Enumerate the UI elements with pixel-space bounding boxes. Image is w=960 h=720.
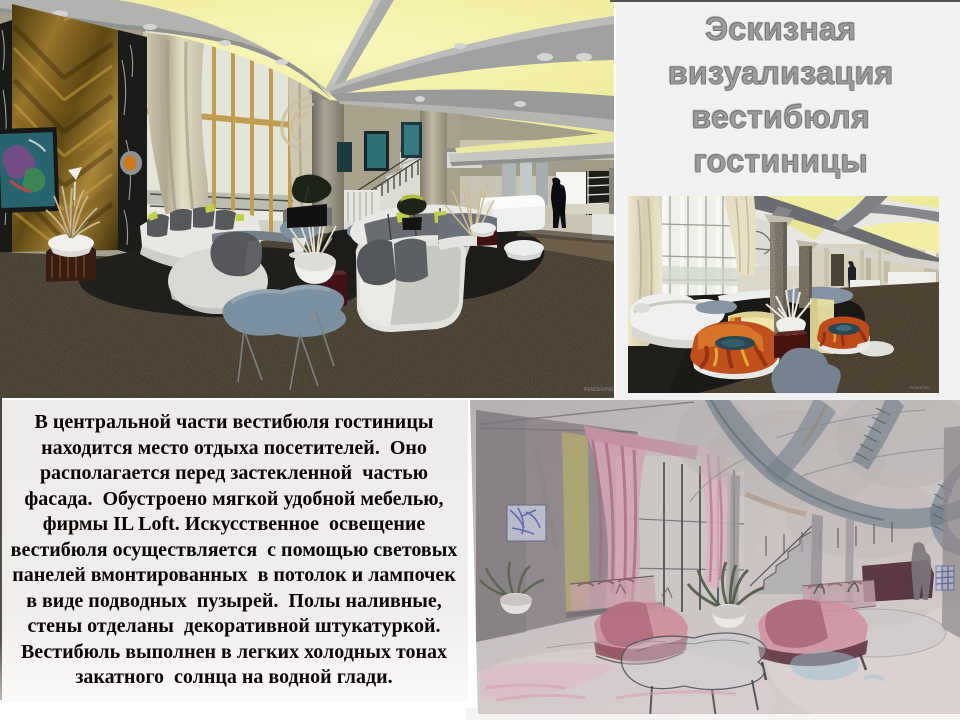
svg-text:PENDERING: PENDERING <box>584 387 614 393</box>
svg-text:RENDERED: RENDERED <box>910 386 930 390</box>
